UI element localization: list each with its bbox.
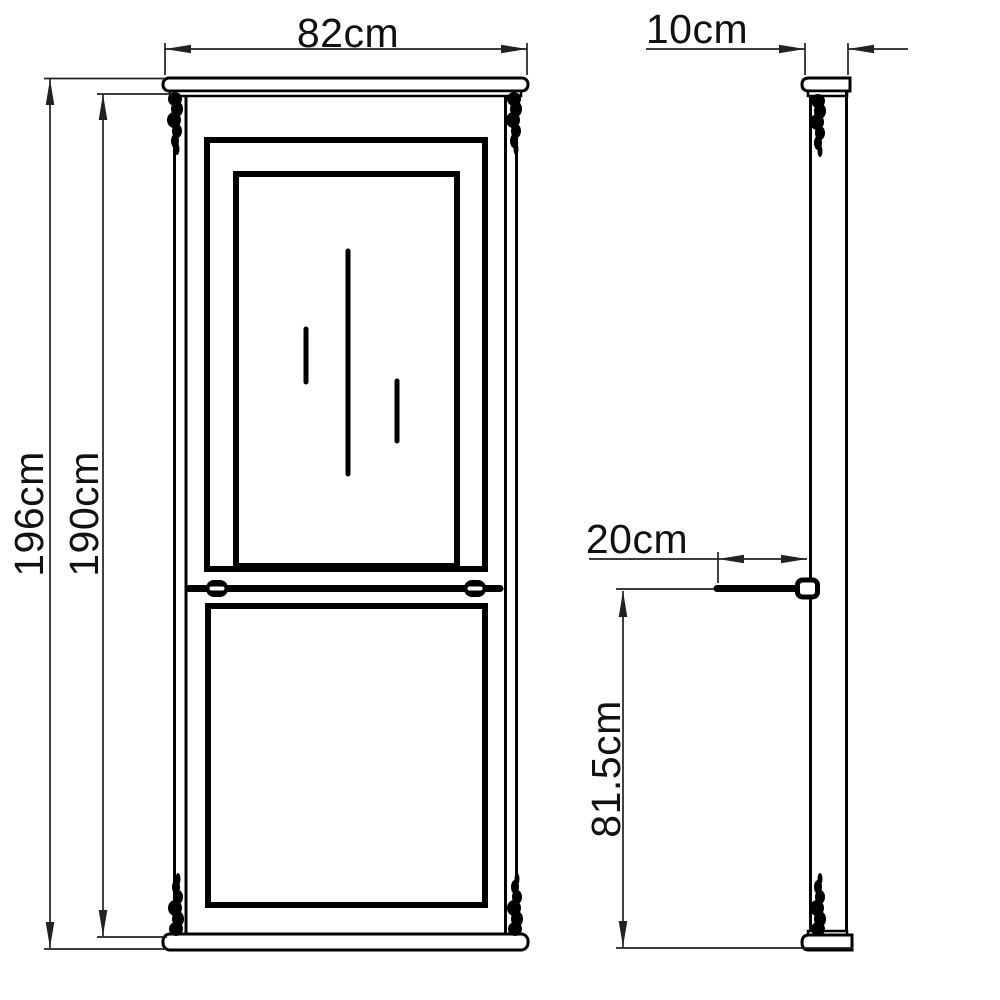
carving-ornament-icon xyxy=(506,92,522,155)
furniture-drawing xyxy=(0,0,1000,1000)
carving-ornament-icon xyxy=(167,92,183,155)
dimension-label-body-height: 190cm xyxy=(62,439,106,589)
plinth-base xyxy=(163,934,528,950)
dimension-label-shelf-height: 81.5cm xyxy=(584,682,628,856)
technical-drawing-canvas: 82cm 10cm 196cm 190cm 20cm 81.5cm xyxy=(0,0,1000,1000)
carving-ornament-icon xyxy=(810,94,826,157)
dimension-label-width: 82cm xyxy=(255,11,441,55)
dimension-body-height xyxy=(97,94,172,937)
crown-molding xyxy=(163,78,528,91)
dimension-label-depth: 10cm xyxy=(610,7,784,51)
carving-ornament-icon xyxy=(507,873,523,936)
left-knob-icon xyxy=(206,580,228,597)
side-top-lip xyxy=(808,91,847,96)
front-view xyxy=(163,78,528,950)
shelf-bracket xyxy=(798,580,818,597)
crown-lip xyxy=(170,91,521,96)
lower-door-panel-frame xyxy=(208,606,485,905)
side-view xyxy=(717,78,852,950)
carving-ornament-icon xyxy=(168,873,184,936)
carving-ornament-icon xyxy=(810,873,826,936)
dimension-label-total-height: 196cm xyxy=(7,439,51,589)
right-knob-icon xyxy=(464,580,486,597)
side-top-cap xyxy=(802,78,850,91)
dimension-label-shelf-depth: 20cm xyxy=(556,517,718,561)
